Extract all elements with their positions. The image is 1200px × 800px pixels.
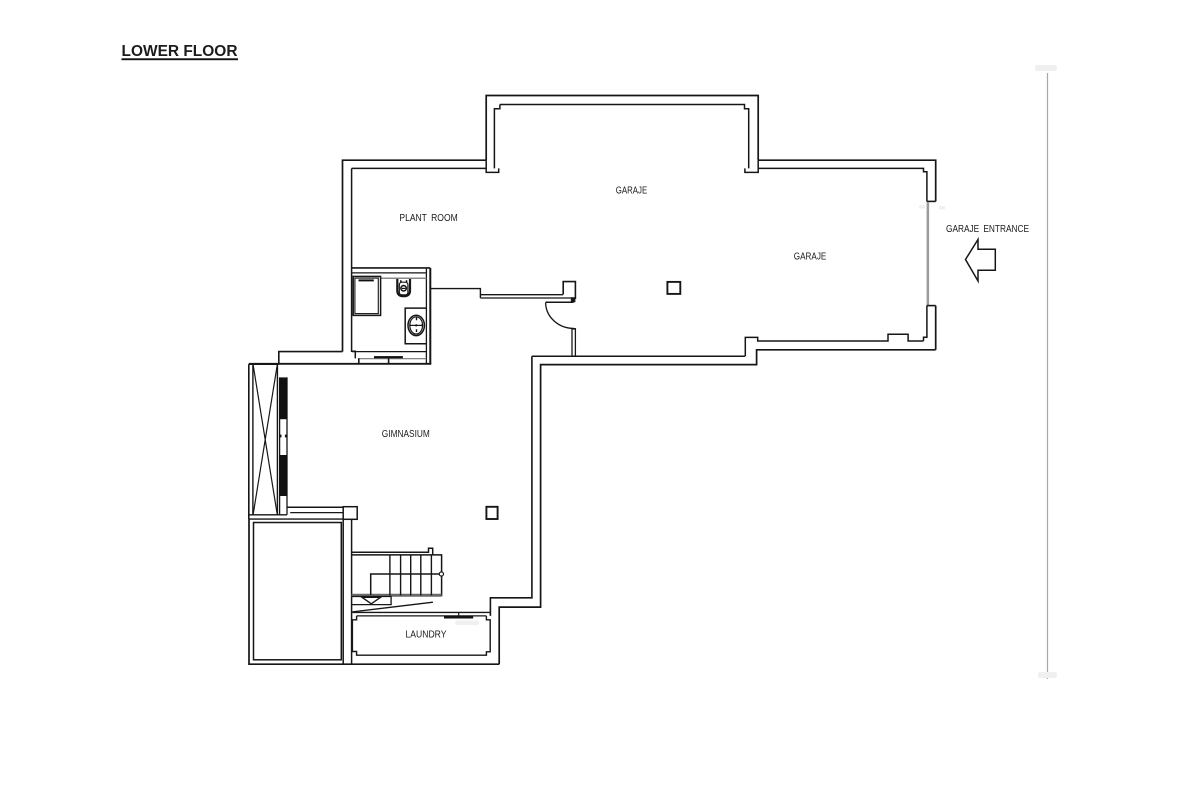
svg-text:GARAJE: GARAJE — [616, 184, 647, 196]
svg-text:GARAJE ENTRANCE: GARAJE ENTRANCE — [946, 223, 1029, 235]
svg-text:LOWER FLOOR: LOWER FLOOR — [122, 43, 239, 60]
svg-text:PLANT ROOM: PLANT ROOM — [399, 212, 457, 224]
svg-text:GARAJE: GARAJE — [794, 251, 827, 263]
svg-text:LAUNDRY: LAUNDRY — [406, 629, 447, 641]
svg-text:GIMNASIUM: GIMNASIUM — [382, 429, 430, 440]
